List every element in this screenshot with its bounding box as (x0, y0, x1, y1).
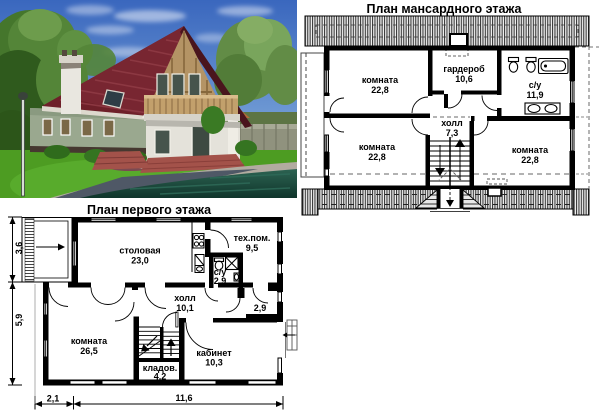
svg-text:10,6: 10,6 (455, 74, 473, 84)
svg-text:2,1: 2,1 (47, 394, 60, 404)
svg-text:2,9: 2,9 (214, 276, 227, 286)
svg-text:комната: комната (512, 145, 549, 155)
svg-text:гардероб: гардероб (443, 64, 485, 74)
svg-text:4,2: 4,2 (154, 372, 167, 382)
svg-text:комната: комната (71, 336, 108, 346)
svg-text:тех.пом.: тех.пом. (234, 233, 271, 243)
svg-text:23,0: 23,0 (131, 256, 149, 266)
svg-text:кабинет: кабинет (196, 348, 232, 358)
svg-text:холл: холл (441, 118, 463, 128)
svg-text:22,8: 22,8 (368, 152, 386, 162)
svg-text:11,9: 11,9 (526, 90, 543, 100)
svg-text:3,6: 3,6 (14, 242, 24, 255)
svg-text:холл: холл (174, 293, 196, 303)
svg-text:22,8: 22,8 (521, 155, 539, 165)
svg-text:5,9: 5,9 (14, 314, 24, 327)
svg-text:План мансардного этажа: План мансардного этажа (367, 2, 523, 16)
svg-text:10,3: 10,3 (205, 358, 223, 368)
svg-text:26,5: 26,5 (80, 346, 98, 356)
svg-text:с/у: с/у (529, 80, 542, 90)
svg-text:2,9: 2,9 (254, 303, 267, 313)
svg-text:столовая: столовая (119, 246, 160, 256)
svg-text:10,1: 10,1 (176, 303, 194, 313)
svg-text:7,3: 7,3 (446, 128, 459, 138)
svg-text:11,6: 11,6 (175, 393, 192, 403)
svg-text:комната: комната (362, 75, 399, 85)
svg-text:9,5: 9,5 (246, 243, 259, 253)
svg-text:комната: комната (359, 142, 396, 152)
svg-text:22,8: 22,8 (371, 85, 389, 95)
svg-text:План первого этажа: План первого этажа (87, 203, 212, 217)
